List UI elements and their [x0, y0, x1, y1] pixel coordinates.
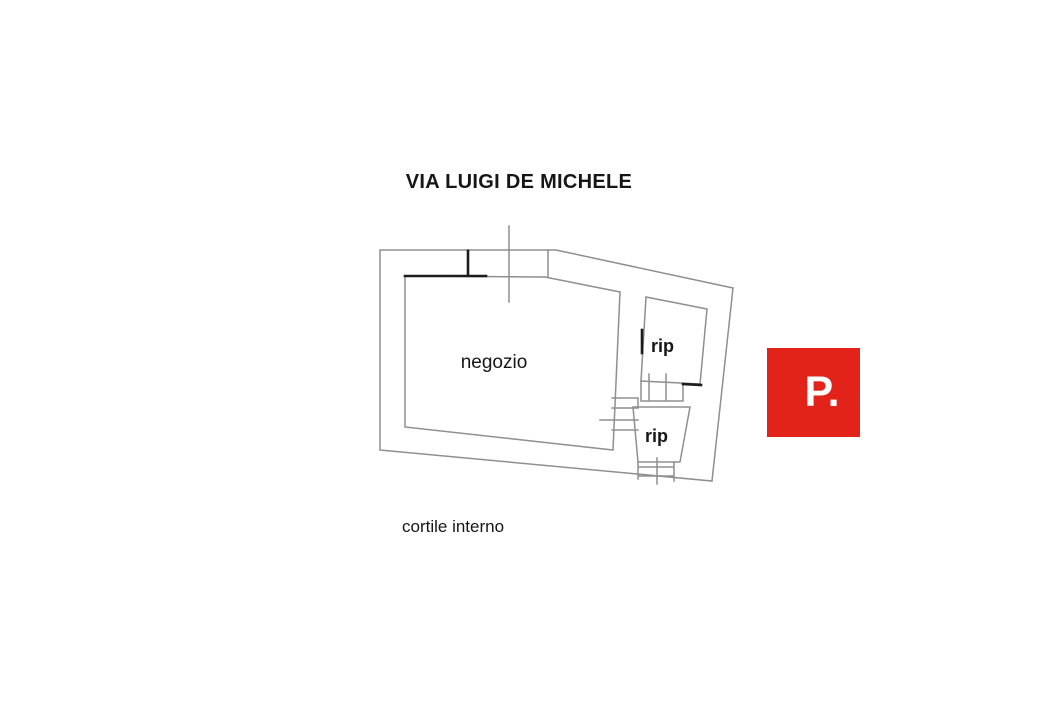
street-name-label: VIA LUIGI DE MICHELE	[406, 171, 632, 193]
room-rip-top-label: rip	[651, 336, 674, 356]
rip-rooms-door-marks	[641, 374, 683, 401]
watermark-label: P.	[804, 368, 839, 416]
floor-plan-walls	[380, 226, 733, 484]
rip-top-bottom-thick-wall	[683, 384, 701, 385]
courtyard-label: cortile interno	[402, 517, 504, 536]
room-rip-bottom-label: rip	[645, 426, 668, 446]
plan-labels: VIA LUIGI DE MICHELE negozio rip rip cor…	[402, 171, 674, 536]
outer-wall-outline	[380, 250, 733, 481]
storefront-divider-marks	[468, 250, 548, 277]
floor-plan-drawing: VIA LUIGI DE MICHELE negozio rip rip cor…	[0, 0, 1040, 720]
room-negozio-label: negozio	[461, 352, 528, 373]
connector-door-marks	[600, 398, 638, 430]
agency-watermark: P.	[767, 348, 860, 437]
floor-plan-page: VIA LUIGI DE MICHELE negozio rip rip cor…	[0, 0, 1040, 720]
